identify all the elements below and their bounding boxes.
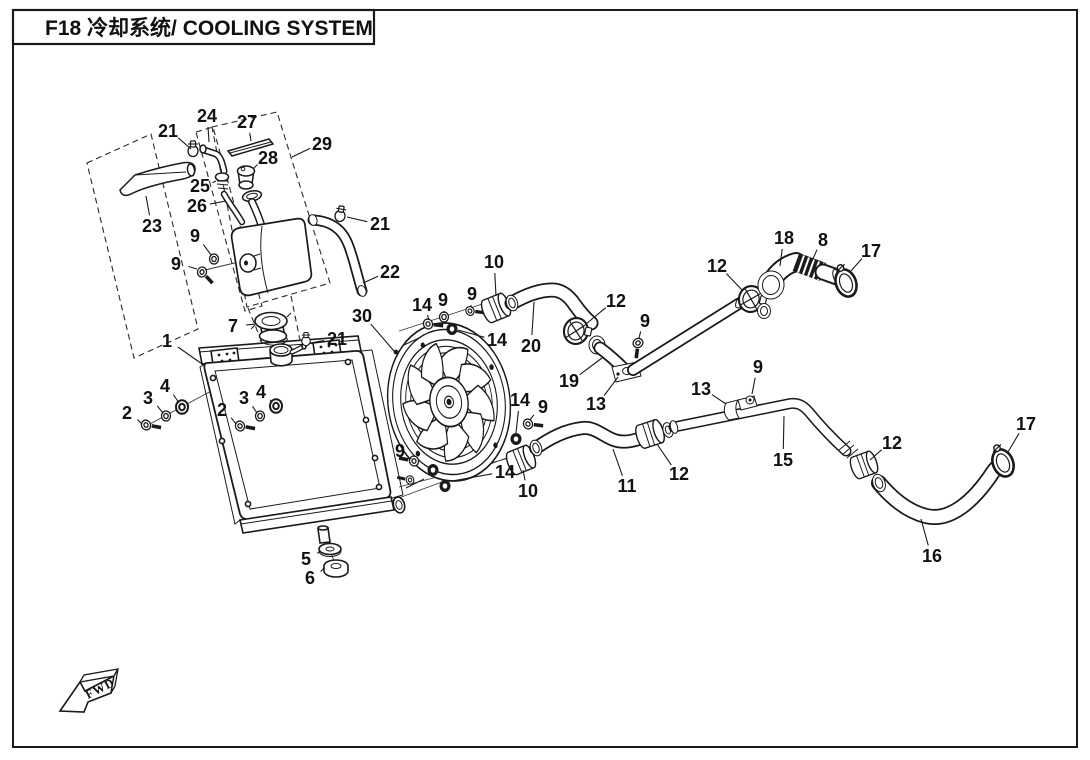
callout-14: 14 xyxy=(510,390,530,410)
callout-4: 4 xyxy=(256,382,266,402)
grommet-14-icon xyxy=(440,480,451,492)
leader-line-2 xyxy=(138,420,143,425)
grommet-14-icon xyxy=(428,464,439,476)
clamp-21-icon xyxy=(334,205,347,222)
callout-25: 25 xyxy=(190,176,210,196)
leader-line-23 xyxy=(146,196,150,215)
leader-line-21 xyxy=(347,217,367,222)
grommet-4-icon xyxy=(270,399,282,413)
callout-12: 12 xyxy=(707,256,727,276)
leader-line-26 xyxy=(210,201,226,204)
radiator xyxy=(140,313,406,578)
washer-9-icon xyxy=(440,312,449,322)
callout-21: 21 xyxy=(370,214,390,234)
leader-line-11 xyxy=(613,449,622,476)
leader-line-20 xyxy=(532,302,534,335)
callout-21: 21 xyxy=(158,121,178,141)
leader-line-19 xyxy=(580,358,602,375)
vent-tube-23 xyxy=(120,163,195,196)
bolt-9-icon xyxy=(629,337,648,358)
radiator-hose-11 xyxy=(528,428,648,457)
reservoir-hose-22 xyxy=(308,205,368,297)
grommet-14-icon xyxy=(511,433,522,445)
callout-10: 10 xyxy=(518,481,538,501)
leader-line-9 xyxy=(203,244,211,255)
elbow-hose-18 xyxy=(736,256,860,319)
callout-9: 9 xyxy=(467,284,477,304)
leader-line-27 xyxy=(250,133,251,141)
callout-17: 17 xyxy=(1016,414,1036,434)
grommet-5 xyxy=(319,544,341,555)
callout-3: 3 xyxy=(239,388,249,408)
callout-22: 22 xyxy=(380,262,400,282)
clamp-21-icon xyxy=(188,141,198,157)
page-title: F18 冷却系统/ COOLING SYSTEM xyxy=(45,16,373,40)
water-pipe-19 xyxy=(562,295,747,382)
radiator-body xyxy=(204,351,390,519)
leader-line-4 xyxy=(173,395,179,404)
reservoir-tank xyxy=(232,219,312,296)
callout-8: 8 xyxy=(818,230,828,250)
coolant-reservoir-assembly xyxy=(188,139,311,295)
callout-4: 4 xyxy=(160,376,170,396)
clamp-21-icon xyxy=(302,333,311,346)
leader-line-13 xyxy=(604,377,618,396)
callout-26: 26 xyxy=(187,196,207,216)
callout-9: 9 xyxy=(753,357,763,377)
callout-9: 9 xyxy=(395,441,405,461)
callout-6: 6 xyxy=(305,568,315,588)
callout-12: 12 xyxy=(606,291,626,311)
callout-20: 20 xyxy=(521,336,541,356)
callout-12: 12 xyxy=(669,464,689,484)
callout-23: 23 xyxy=(142,216,162,236)
callout-2: 2 xyxy=(122,403,132,423)
radiator-outlet xyxy=(392,496,407,514)
grommet-14-icon xyxy=(447,323,458,335)
callout-15: 15 xyxy=(773,450,793,470)
parts-catalog-page: F18 冷却系统/ COOLING SYSTEM xyxy=(0,0,1090,760)
callout-12: 12 xyxy=(882,433,902,453)
leader-line-3 xyxy=(157,406,163,413)
callout-29: 29 xyxy=(312,134,332,154)
callout-28: 28 xyxy=(258,148,278,168)
fwd-arrow: FWD xyxy=(60,669,118,712)
leader-line-29 xyxy=(292,148,310,157)
callout-16: 16 xyxy=(922,546,942,566)
callout-10: 10 xyxy=(484,252,504,272)
grommet-4-icon xyxy=(176,400,188,414)
callout-18: 18 xyxy=(774,228,794,248)
callout-9: 9 xyxy=(190,226,200,246)
leader-line-9 xyxy=(411,458,412,460)
leader-line-30 xyxy=(371,324,394,351)
leader-line-10 xyxy=(495,273,496,296)
callout-19: 19 xyxy=(559,371,579,391)
leader-line-25 xyxy=(212,181,216,183)
leader-line-9 xyxy=(639,331,641,338)
fitting-24 xyxy=(200,145,206,153)
leader-line-17 xyxy=(1008,433,1019,452)
callout-9: 9 xyxy=(438,290,448,310)
callout-1: 1 xyxy=(162,331,172,351)
callout-30: 30 xyxy=(352,306,372,326)
leader-line-12 xyxy=(726,274,743,291)
callout-13: 13 xyxy=(691,379,711,399)
leader-line-21 xyxy=(178,138,191,149)
leader-line-12 xyxy=(657,444,671,465)
callout-24: 24 xyxy=(197,106,217,126)
callout-9: 9 xyxy=(171,254,181,274)
title-box: F18 冷却系统/ COOLING SYSTEM xyxy=(13,10,374,44)
leader-line-22 xyxy=(363,276,378,283)
leader-line-24 xyxy=(208,127,209,142)
leader-line-9 xyxy=(752,378,755,394)
callout-9: 9 xyxy=(538,397,548,417)
washer-9-icon xyxy=(210,254,219,264)
callout-14: 14 xyxy=(495,462,515,482)
leader-line-9 xyxy=(530,415,534,420)
leader-line-15 xyxy=(783,416,784,449)
callout-27: 27 xyxy=(237,112,257,132)
bolt-2-icon xyxy=(140,415,161,434)
callout-3: 3 xyxy=(143,388,153,408)
cooling-system-diagram: F18 冷却系统/ COOLING SYSTEM xyxy=(0,0,1090,760)
leader-line-9 xyxy=(189,267,197,270)
callout-13: 13 xyxy=(586,394,606,414)
leader-line-13 xyxy=(712,395,726,404)
leader-line-14 xyxy=(516,411,518,433)
callout-14: 14 xyxy=(487,330,507,350)
callout-17: 17 xyxy=(861,241,881,261)
callout-7: 7 xyxy=(228,316,238,336)
callout-2: 2 xyxy=(217,400,227,420)
callout-11: 11 xyxy=(617,476,636,496)
callout-9: 9 xyxy=(640,311,650,331)
plug-25 xyxy=(216,173,229,189)
callout-21: 21 xyxy=(327,329,347,349)
leader-line-28 xyxy=(253,165,258,170)
callout-14: 14 xyxy=(412,295,432,315)
callout-5: 5 xyxy=(301,549,311,569)
cap-28 xyxy=(238,166,255,189)
